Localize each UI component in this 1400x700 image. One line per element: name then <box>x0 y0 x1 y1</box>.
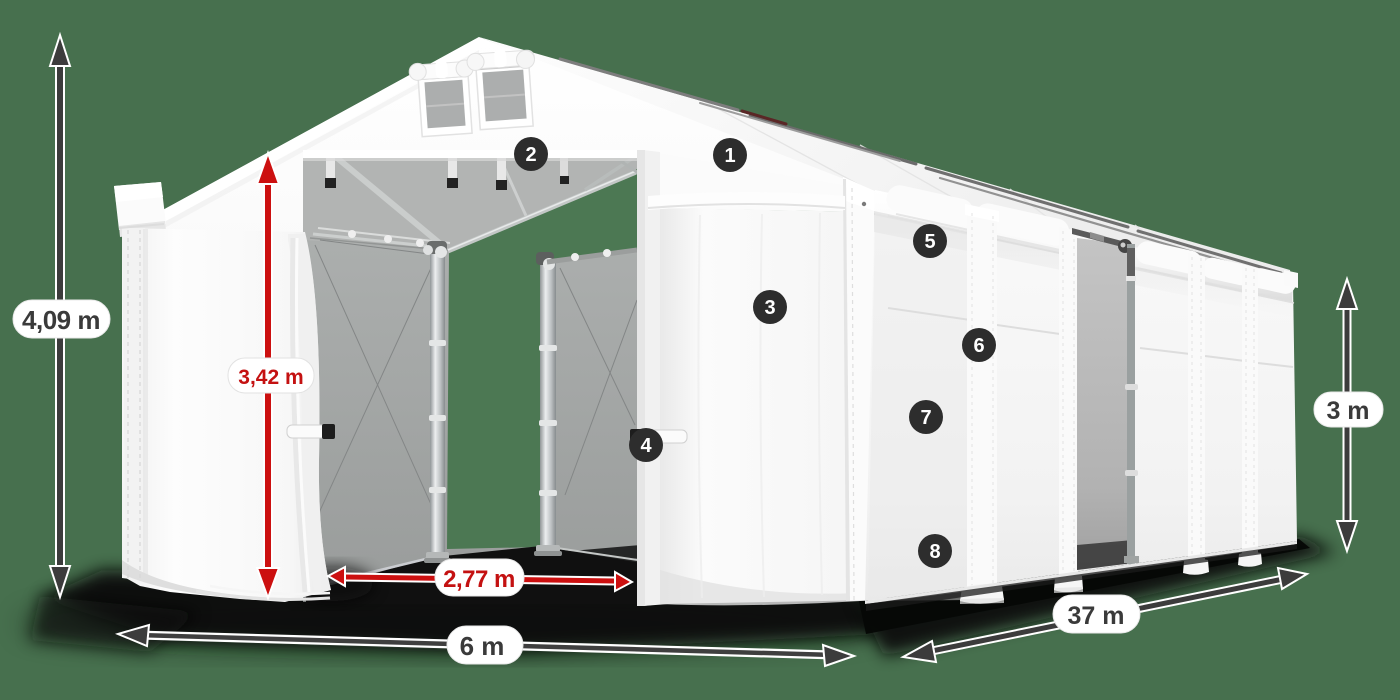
svg-text:6: 6 <box>973 335 984 357</box>
svg-text:5: 5 <box>924 231 935 253</box>
svg-text:2: 2 <box>525 144 536 166</box>
svg-text:3,42 m: 3,42 m <box>238 366 303 389</box>
svg-text:6 m: 6 m <box>460 631 505 661</box>
svg-text:3: 3 <box>764 297 775 319</box>
svg-text:4,09 m: 4,09 m <box>22 305 100 335</box>
svg-text:1: 1 <box>724 145 735 167</box>
svg-text:2,77 m: 2,77 m <box>443 566 515 593</box>
svg-text:4: 4 <box>640 435 652 457</box>
svg-text:37 m: 37 m <box>1068 602 1125 630</box>
svg-text:7: 7 <box>920 407 931 429</box>
svg-text:3 m: 3 m <box>1326 397 1369 425</box>
svg-text:8: 8 <box>929 541 940 563</box>
